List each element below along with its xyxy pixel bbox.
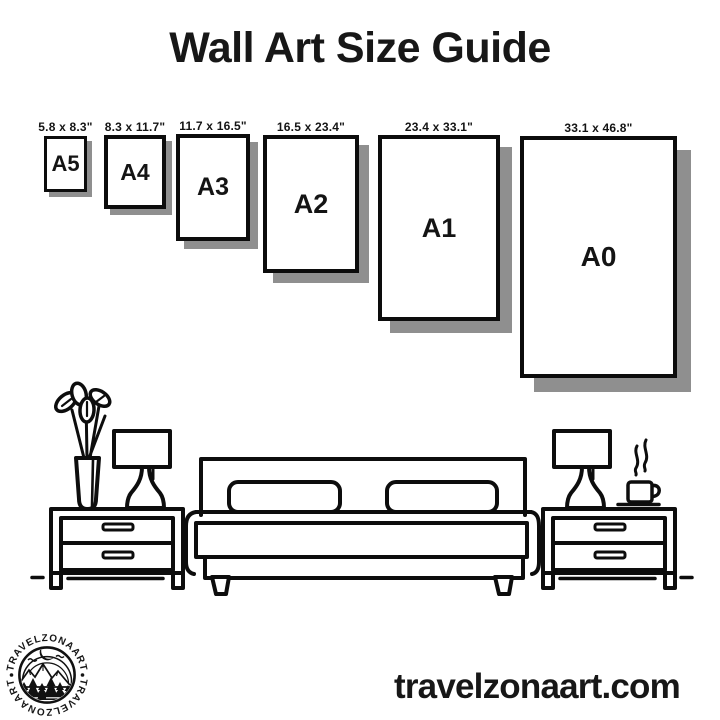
size-frame-a1: 23.4 x 33.1" A1 [378, 135, 500, 321]
logo-side-dot [81, 673, 85, 677]
size-frame-a3: 11.7 x 16.5" A3 [176, 134, 250, 241]
table-lamp-icon-right [554, 431, 610, 508]
website-url: travelzonaart.com [394, 667, 680, 707]
frame-dimensions-label: 5.8 x 8.3" [38, 120, 92, 134]
frame-size-code: A1 [422, 213, 457, 244]
frame-dimensions-label: 33.1 x 46.8" [564, 121, 632, 135]
page-title: Wall Art Size Guide [0, 24, 720, 73]
bedroom-illustration [0, 380, 720, 620]
coffee-cup-icon [618, 440, 659, 505]
size-frame-a0: 33.1 x 46.8" A0 [520, 136, 677, 378]
frame-size-code: A3 [197, 173, 229, 202]
table-lamp-icon-left [114, 431, 170, 508]
frame-dimensions-label: 11.7 x 16.5" [179, 119, 246, 133]
size-guide-poster: Wall Art Size Guide 5.8 x 8.3" A5 8.3 x … [0, 0, 720, 720]
double-bed-icon [186, 459, 539, 594]
frame-dimensions-label: 16.5 x 23.4" [277, 120, 345, 134]
logo-side-dot [10, 673, 14, 677]
frame-size-code: A2 [294, 189, 329, 220]
frame-dimensions-label: 23.4 x 33.1" [405, 120, 473, 134]
pillow-left [229, 482, 340, 512]
nightstand-icon-left [51, 509, 183, 588]
size-frame-a2: 16.5 x 23.4" A2 [263, 135, 359, 273]
size-frame-a5: 5.8 x 8.3" A5 [44, 136, 87, 192]
nightstand-icon-right [543, 509, 675, 588]
frame-size-code: A5 [51, 151, 79, 177]
pillow-right [387, 482, 497, 512]
size-frame-a4: 8.3 x 11.7" A4 [104, 135, 166, 209]
vase-plant-icon [52, 382, 112, 509]
frame-size-code: A4 [120, 159, 149, 186]
brand-logo-badge: TRAVELZONAART TRAVELZONAART [2, 630, 94, 720]
frame-dimensions-label: 8.3 x 11.7" [105, 120, 166, 134]
frame-size-code: A0 [581, 241, 617, 273]
